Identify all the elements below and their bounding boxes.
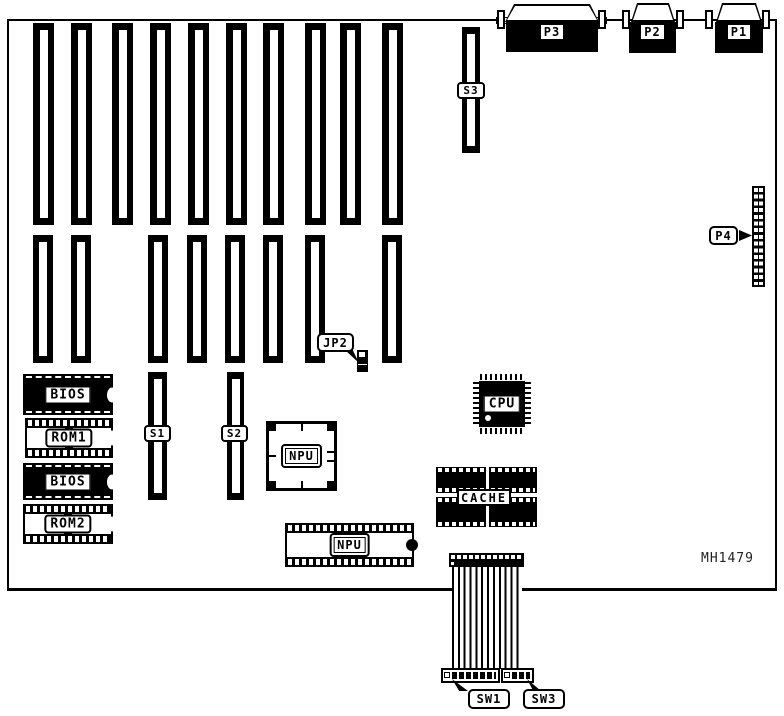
sw3-dip-switch [501, 668, 534, 683]
port-p3: P3 [506, 22, 598, 52]
rom2-chip: ROM2 [23, 504, 113, 544]
port-p1-label: P1 [727, 24, 751, 40]
jp2-jumper [357, 350, 368, 372]
npu-socket-label-box: NPU [281, 444, 322, 468]
switch-cells [452, 672, 496, 679]
port-p3-screw-tab [598, 10, 606, 29]
p4-callout: P4 [709, 226, 738, 245]
socket-corner [327, 481, 334, 488]
expansion-slot [263, 23, 284, 225]
expansion-slot [382, 235, 402, 363]
port-p2: P2 [629, 22, 676, 53]
motherboard-diagram: S1 S2 S3 P3 P2 P1 P4 JP2 BIOS [0, 0, 784, 716]
port-p3-label: P3 [540, 24, 564, 40]
port-p3-shell [505, 4, 599, 22]
expansion-slot [226, 23, 247, 225]
cpu-pin1-dot [485, 415, 491, 421]
socket-tick [269, 455, 276, 457]
port-p1-screw-tab [705, 10, 713, 29]
pin-header-p4 [752, 186, 765, 287]
port-p3-screw-tab [497, 10, 505, 29]
slot-s1-label: S1 [144, 425, 171, 442]
pin-row [288, 559, 411, 565]
npu-socket-label: NPU [285, 448, 318, 464]
cpu-pins [480, 374, 524, 380]
expansion-slot [71, 235, 91, 363]
chip-dash [26, 496, 110, 498]
expansion-slot [150, 23, 171, 225]
cpu-pins [525, 382, 531, 426]
expansion-slot [263, 235, 283, 363]
switch-cells [512, 672, 530, 679]
port-p1-screw-tab [762, 10, 770, 29]
chip-dash [26, 376, 110, 378]
bios1-label: BIOS [45, 386, 90, 403]
socket-corner [269, 481, 276, 488]
socket-tick [301, 481, 303, 488]
port-p1-shell [716, 3, 762, 22]
pin-row [28, 450, 110, 456]
chip-notch [107, 474, 117, 489]
pin-row [26, 536, 110, 542]
ribbon-header [449, 553, 524, 567]
chip-dash [26, 465, 110, 467]
expansion-slot [382, 23, 403, 225]
jumper-cap [358, 351, 366, 358]
expansion-slot [33, 23, 54, 225]
bios-chip-1: BIOS [23, 374, 113, 415]
cpu-label: CPU [484, 396, 520, 413]
port-p2-label: P2 [640, 24, 664, 40]
chip-dash [26, 411, 110, 413]
port-p2-screw-tab [676, 10, 684, 29]
port-p2-shell [631, 3, 675, 22]
rom1-label: ROM1 [45, 429, 92, 448]
rom2-label: ROM2 [44, 515, 91, 534]
npu-dip-label: NPU [333, 537, 366, 553]
socket-corner [327, 424, 334, 431]
npu-dip-label-box: NPU [329, 533, 370, 557]
slot-s3-label: S3 [457, 82, 485, 99]
socket-tick [301, 424, 303, 431]
port-p1: P1 [715, 22, 763, 53]
expansion-slot [112, 23, 133, 225]
sw1-callout: SW1 [468, 689, 510, 709]
bios2-label: BIOS [45, 473, 90, 490]
switch-pin1 [444, 672, 450, 678]
expansion-slot [71, 23, 92, 225]
jp2-callout: JP2 [317, 333, 354, 352]
bios-chip-2: BIOS [23, 463, 113, 500]
chip-notch [107, 387, 117, 402]
npu-socket: NPU [266, 421, 337, 491]
expansion-slot [148, 235, 168, 363]
slot-s2-label: S2 [221, 425, 248, 442]
expansion-slot [305, 23, 326, 225]
expansion-slot [340, 23, 361, 225]
part-number: MH1479 [701, 551, 754, 566]
socket-corner [269, 424, 276, 431]
sw3-callout: SW3 [523, 689, 565, 709]
rom1-chip: ROM1 [25, 418, 113, 458]
sw1-dip-switch [441, 668, 500, 683]
ribbon-cable [452, 567, 522, 669]
expansion-slot [33, 235, 53, 363]
switch-pin1 [504, 672, 510, 678]
cache-label: CACHE [457, 489, 511, 506]
chip-notch [107, 517, 117, 532]
cpu-chip: CPU [479, 381, 525, 427]
expansion-slot [225, 235, 245, 363]
chip-notch [107, 431, 117, 446]
expansion-slot [188, 23, 209, 225]
chip-notch [406, 539, 418, 551]
socket-tick [327, 451, 334, 453]
cpu-pins [480, 428, 524, 434]
socket-tick [327, 460, 334, 462]
npu-dip-chip: NPU [285, 523, 414, 567]
expansion-slot [187, 235, 207, 363]
